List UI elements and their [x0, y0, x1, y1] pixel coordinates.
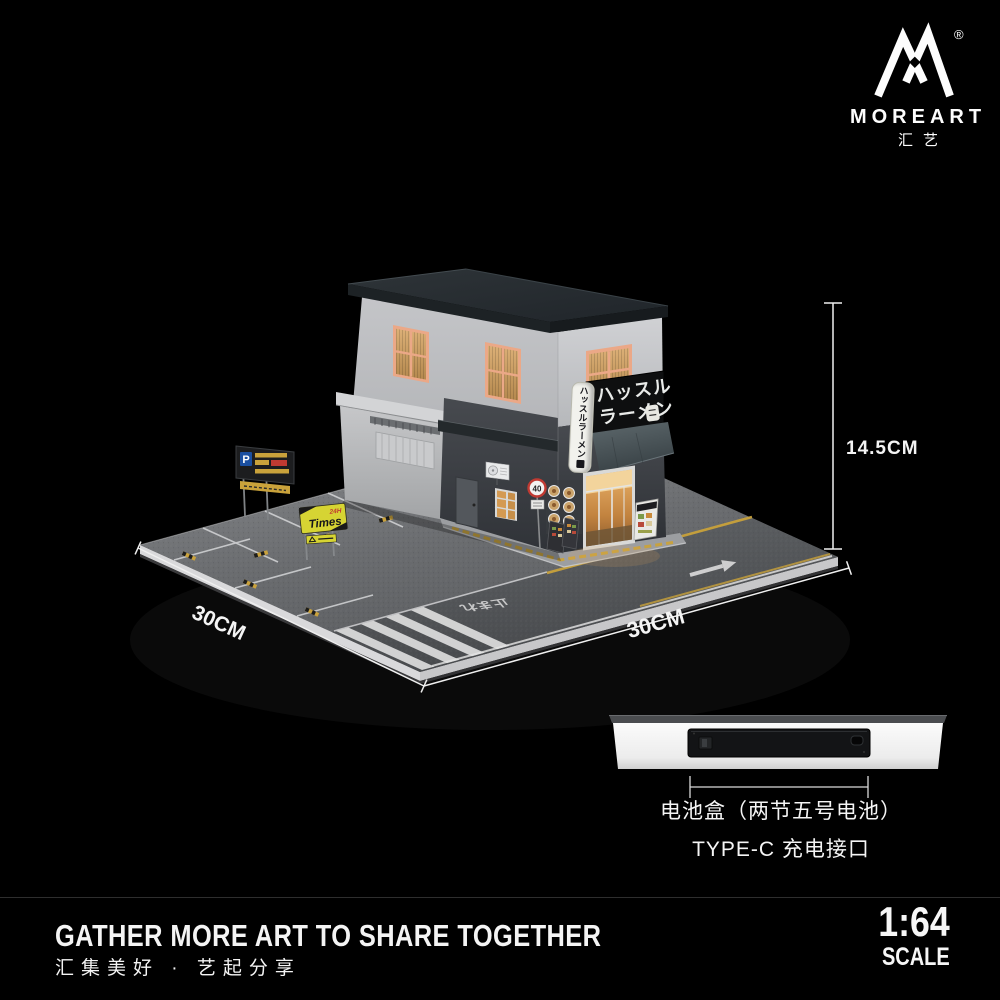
vertical-sign-stamp: [576, 460, 584, 468]
brand-name-chinese: 汇艺: [840, 129, 996, 150]
footer-divider: [0, 897, 1000, 898]
storefront: [583, 466, 635, 551]
service-door: [456, 477, 478, 528]
scale-badge: 1:64 SCALE: [865, 901, 950, 970]
standing-menu-board-right: [634, 499, 658, 540]
scale-value: 1:64: [878, 901, 950, 943]
vertical-sign-text: ハッスルラーメン: [570, 386, 594, 459]
parking-sign-symbol: P: [242, 454, 249, 466]
battery-base-top-edge: [609, 715, 947, 723]
charging-port-caption: TYPE-C 充电接口: [581, 833, 981, 863]
window-upper-1: [393, 325, 429, 383]
times-sign-hours: 24H: [328, 508, 342, 516]
ramen-vertical-sign: ハッスルラーメン: [568, 382, 595, 474]
times-warning-plate: [306, 534, 336, 544]
speed-limit-value: 40: [533, 485, 542, 494]
brand-name: MOREART: [840, 106, 991, 129]
window-upper-2: [485, 342, 521, 404]
footer-slogan-en: GATHER MORE ART TO SHARE TOGETHER: [55, 918, 601, 954]
height-dimension-label: 14.5CM: [846, 438, 919, 460]
side-window: [495, 488, 517, 521]
scale-word: SCALE: [882, 945, 950, 970]
sign-seal: [645, 404, 660, 422]
product-poster: 止まれ: [0, 0, 1000, 1000]
type-c-port: [851, 736, 863, 745]
registered-trademark: ®: [954, 27, 964, 42]
battery-compartment: [688, 729, 870, 757]
footer-slogan-cn: 汇集美好 · 艺起分享: [55, 953, 301, 980]
storefront-light-spill: [568, 545, 660, 567]
battery-caption: 电池盒（两节五号电池）: [581, 795, 981, 825]
